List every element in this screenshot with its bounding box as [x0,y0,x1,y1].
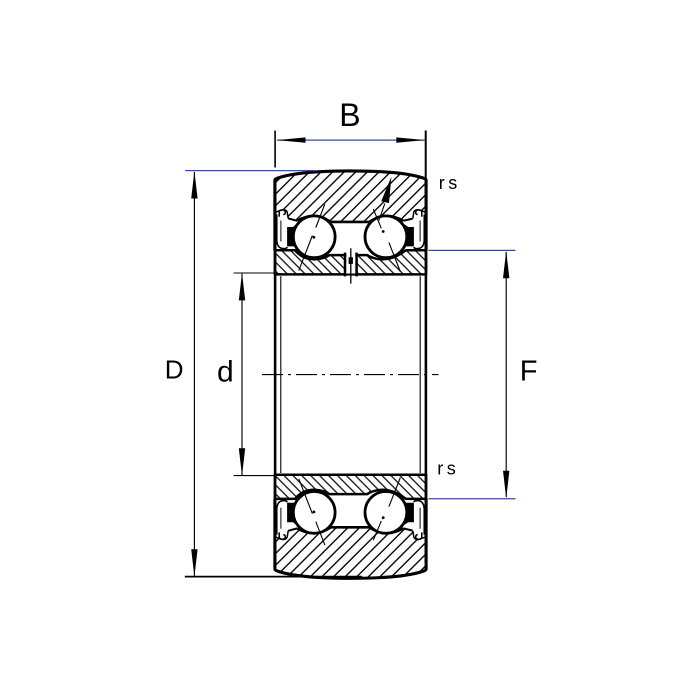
svg-text:D: D [165,355,184,385]
svg-text:rs: rs [439,173,457,193]
svg-text:d: d [217,356,234,389]
svg-text:F: F [520,355,538,387]
svg-text:rs: rs [437,459,455,479]
svg-text:B: B [339,97,360,133]
